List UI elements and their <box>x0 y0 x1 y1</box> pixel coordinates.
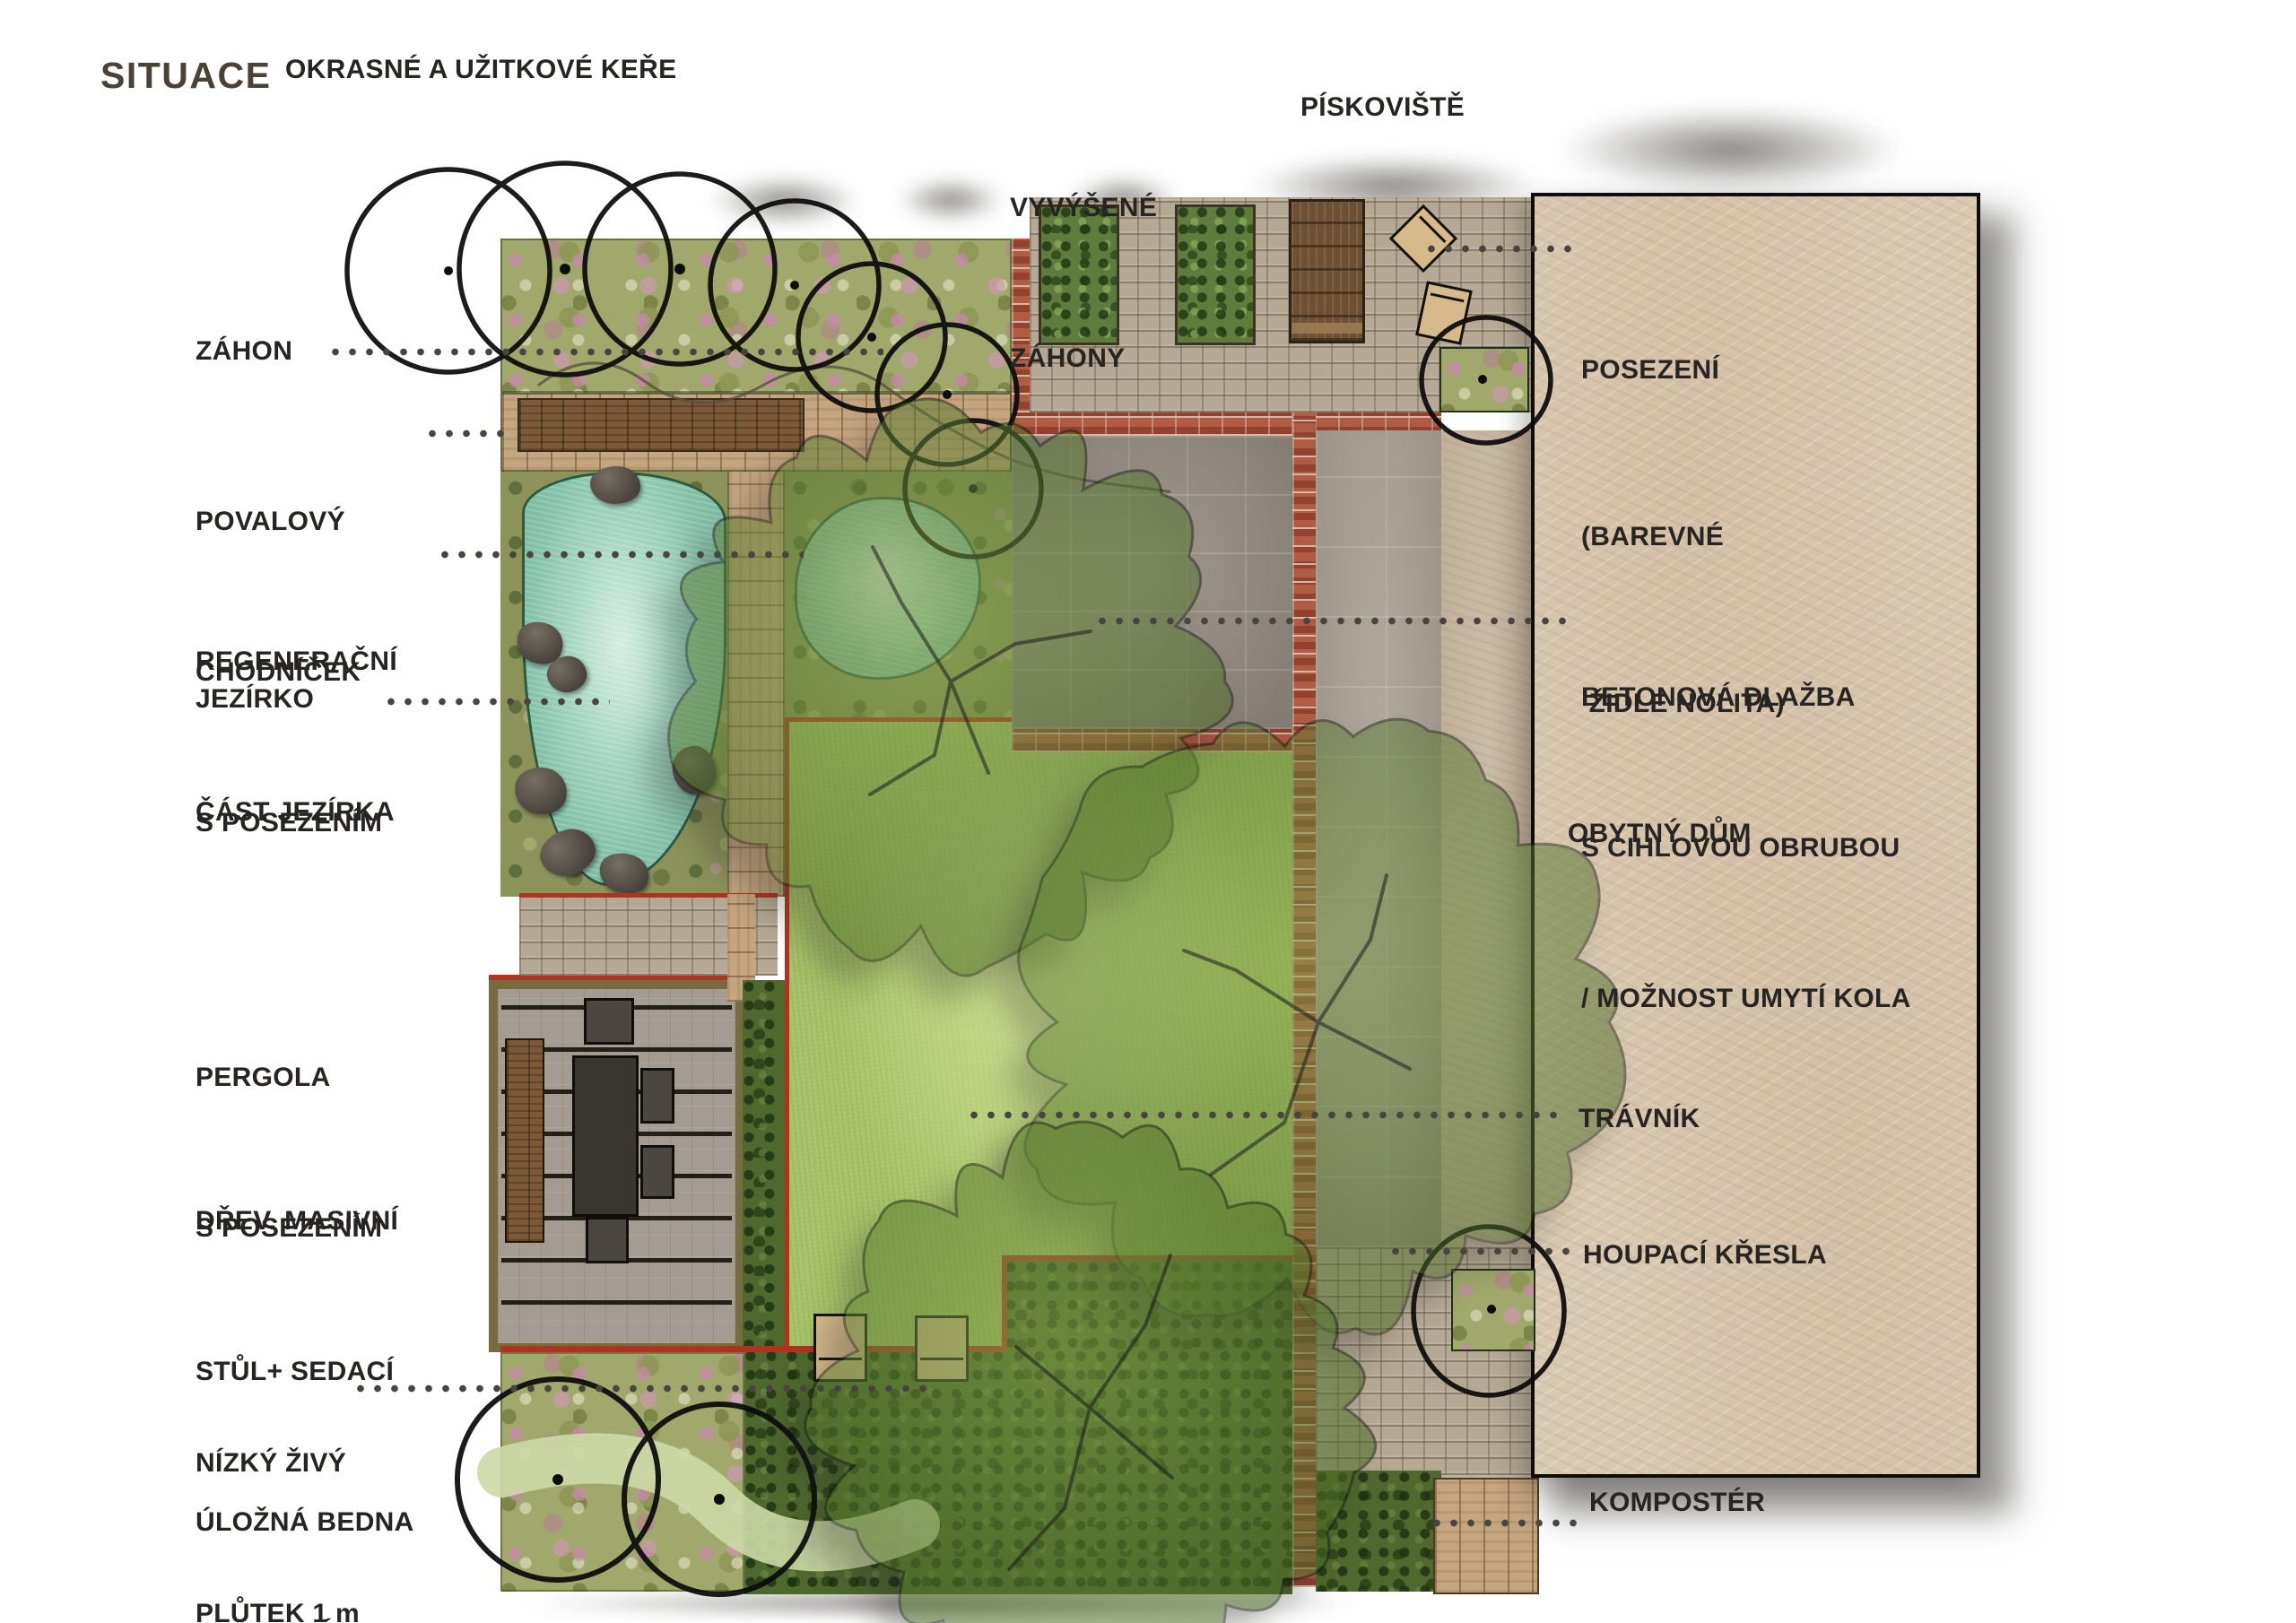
label-okrasne-kere-top: OKRASNÉ A UŽITKOVÉ KEŘE <box>285 56 676 84</box>
hanging-chair-1 <box>813 1314 867 1382</box>
aero-chair <box>640 1145 674 1199</box>
leader-povalovy <box>429 430 511 438</box>
shrub-patch <box>1004 1261 1292 1350</box>
leader-posezeni <box>1428 245 1573 253</box>
label-line: ČÁST JEZÍRKA <box>196 787 397 838</box>
storage-bench <box>505 1038 544 1243</box>
aero-chair <box>640 1068 674 1124</box>
label-line: DŘEV. MASIVNÍ <box>196 1196 414 1246</box>
label-line: BETONOVÁ DLAŽBA <box>1581 673 1911 723</box>
label-jezirko: JEZÍRKO <box>196 674 314 725</box>
regeneration-pool <box>795 497 981 680</box>
label-line: / MOŽNOST UMYTÍ KOLA <box>1581 974 1911 1024</box>
komposter-planks <box>1433 1478 1539 1594</box>
page-title: SITUACE <box>100 56 271 95</box>
leader-komposter <box>1433 1519 1582 1527</box>
brick-edge-vertical <box>1292 412 1316 1587</box>
label-vyvysene-zahony: VYVÝŠENÉ ZÁHONY <box>1010 82 1157 484</box>
leader-houpaci <box>1392 1247 1573 1255</box>
brick-edge-pad-bottom <box>1012 729 1292 752</box>
shrub-patch-right <box>1316 1471 1441 1592</box>
leader-regeneracni <box>441 551 804 559</box>
label-okrasne-zahon-bottom: OKRASNÉ A UŽITKOVÉ KEŘE /ZÁHON <box>199 1508 560 1623</box>
pergola <box>489 980 744 1352</box>
lawn-border-step <box>1002 1255 1007 1350</box>
hedge-strip <box>743 980 785 1352</box>
zone-pond-regeneration <box>785 472 1012 717</box>
zone-pond-area <box>500 472 727 897</box>
lawn-border-left <box>785 717 789 1350</box>
label-travnik: TRÁVNÍK <box>1578 1094 1700 1144</box>
aero-chair <box>584 998 634 1045</box>
lawn-border-top <box>785 717 1012 722</box>
leader-betonova <box>1099 617 1567 625</box>
shadow-blob <box>709 176 861 226</box>
planting-square-top-dot <box>1478 375 1487 384</box>
massive-table <box>572 1055 639 1217</box>
shadow-blob <box>1556 106 1906 194</box>
zone-flower-bed-top <box>500 239 1012 393</box>
boardwalk-dark-planks <box>517 398 804 452</box>
aero-chair <box>586 1217 629 1263</box>
leader-jezirko <box>387 698 610 706</box>
zone-boardwalk-vertical <box>727 472 785 897</box>
label-obytny-dum: OBYTNÝ DŮM <box>1568 809 1752 859</box>
leader-zahon <box>332 348 883 356</box>
label-komposter: KOMPOSTÉR <box>1589 1478 1765 1528</box>
leader-nizky-plutek <box>357 1384 935 1393</box>
lawn-border-right-bottom <box>1004 1255 1292 1261</box>
label-line: OKRASNÉ <box>199 1609 560 1623</box>
leader-travnik <box>970 1111 1567 1119</box>
pond-rock <box>590 466 640 504</box>
site-plan-canvas: SITUACE OKRASNÉ A UŽITKOVÉ KEŘE VYVÝŠENÉ… <box>0 0 2296 1623</box>
hanging-chair-2 <box>915 1315 969 1382</box>
label-line: (BAREVNÉ <box>1581 509 1785 565</box>
label-zahon: ZÁHON <box>196 326 292 377</box>
raised-bed-2 <box>1175 204 1256 345</box>
label-line: ZÁHONY <box>1010 334 1157 384</box>
shadow-blob <box>897 178 1004 222</box>
label-piskoviste: PÍSKOVIŠTĚ <box>1300 82 1465 133</box>
sandbox <box>1289 199 1365 343</box>
label-houpaci: HOUPACÍ KŘESLA <box>1583 1230 1827 1280</box>
zone-boardwalk-horizontal <box>500 393 1012 472</box>
planting-square-bottom-dot <box>1487 1305 1496 1314</box>
label-line: NÍZKÝ ŽIVÝ <box>196 1438 360 1488</box>
label-regeneracni: REGENERAČNÍ ČÁST JEZÍRKA <box>196 536 397 938</box>
label-line: VYVÝŠENÉ <box>1010 183 1157 233</box>
zone-paving-strip-right <box>1316 430 1441 1247</box>
pergola-beam <box>501 1300 732 1305</box>
sandbox-board <box>1291 323 1362 334</box>
label-line: POSEZENÍ <box>1581 343 1785 398</box>
